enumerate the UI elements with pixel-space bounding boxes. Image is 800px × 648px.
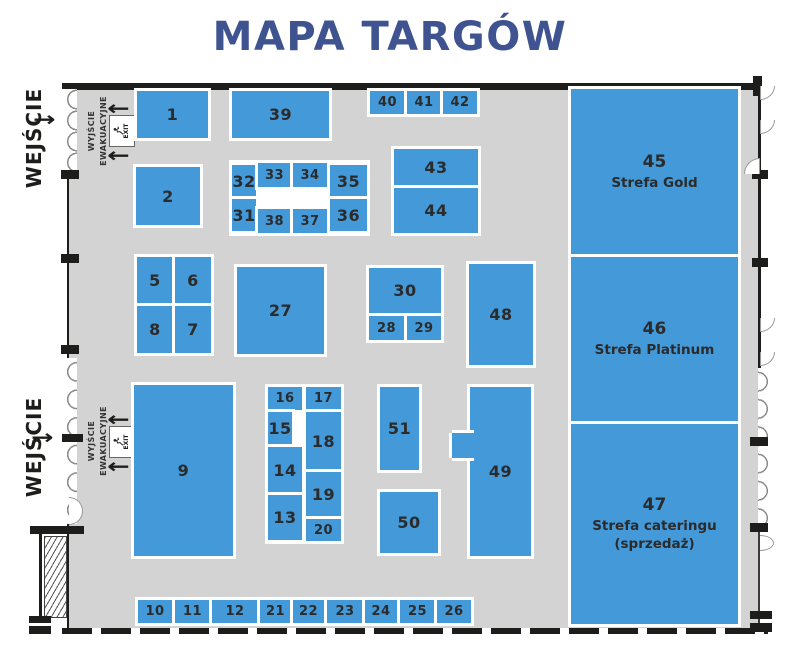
booth-5: 5: [137, 257, 173, 304]
booth-37: 37: [293, 209, 327, 233]
booth-11: 11: [175, 600, 210, 623]
booth-40: 40: [370, 91, 405, 114]
booth-26: 26: [437, 600, 471, 623]
wall-tick: [752, 258, 768, 267]
booth-1: 1: [137, 91, 208, 138]
booth-32: 32: [232, 165, 256, 198]
wall-bottom-dashed: [62, 628, 768, 634]
booth-14: 14: [268, 447, 302, 493]
booth-9: 9: [134, 385, 233, 556]
wall-tick: [61, 345, 79, 354]
evac-arrow: ←: [107, 143, 130, 167]
zone-subname: (sprzedaż): [614, 535, 694, 553]
zone-45: 45Strefa Gold: [571, 89, 738, 254]
booth-21: 21: [260, 600, 291, 623]
staircase-steps: [44, 536, 67, 618]
booth-39: 39: [232, 91, 329, 138]
booth-36: 36: [330, 199, 367, 231]
evac-line1: WYJŚCIE: [87, 111, 96, 151]
zone-47: 47Strefa cateringu(sprzedaż): [571, 424, 738, 624]
door-arc: [760, 535, 774, 551]
curtain-scallops-right: [758, 368, 773, 532]
wall-corner-bar: [750, 611, 772, 619]
booth-16: 16: [268, 387, 302, 410]
booth-19: 19: [306, 472, 341, 517]
staircase-rail: [39, 534, 42, 618]
wall-corner-bar: [750, 623, 772, 632]
staircase-bottom-bar: [29, 626, 51, 634]
booth-38: 38: [258, 209, 291, 233]
zone-number: 46: [643, 318, 667, 341]
booth-7: 7: [175, 306, 211, 353]
booth-41: 41: [407, 91, 441, 114]
exit-sign-text: EXIT: [124, 434, 130, 449]
booth-17: 17: [306, 387, 341, 410]
booth-18: 18: [306, 412, 341, 470]
booth-22: 22: [293, 600, 324, 623]
staircase-top-bar: [30, 526, 84, 534]
door-arc: [760, 318, 775, 332]
booth-44: 44: [394, 188, 478, 233]
booth-30: 30: [369, 268, 441, 313]
zone-number: 47: [643, 494, 667, 517]
booth-6: 6: [175, 257, 211, 304]
wall-tick: [750, 523, 768, 532]
booth-43: 43: [394, 149, 478, 186]
booth-51: 51: [380, 387, 419, 470]
booth-24: 24: [365, 600, 397, 623]
booth-33: 33: [258, 163, 291, 187]
staircase-bottom-bar: [29, 616, 51, 623]
zone-name: Strefa Gold: [611, 174, 697, 192]
booth-10: 10: [138, 600, 172, 623]
curtain-scallops-left-top: [62, 89, 77, 173]
booth-8: 8: [137, 306, 173, 353]
exit-sign-text: EXIT: [124, 123, 130, 138]
booth-27: 27: [237, 267, 324, 354]
booth-12: 12: [212, 600, 258, 623]
fair-map: MAPA TARGÓW WEJŚCIE → WEJŚCIE → WYJŚCIE …: [0, 0, 800, 648]
wall-tick: [750, 437, 768, 446]
booth-15: 15: [268, 412, 292, 445]
booth-50: 50: [380, 492, 438, 553]
door-arc: [760, 352, 775, 366]
entrance-label-top: WEJŚCIE: [22, 78, 46, 198]
evac-line1: WYJŚCIE: [87, 421, 96, 461]
door-arc: [760, 86, 775, 100]
running-person-icon: [113, 125, 124, 137]
booth-31: 31: [232, 199, 256, 231]
entrance-marker-bar: [62, 434, 83, 442]
entrance-arrow-top: →: [33, 107, 56, 131]
booth-28: 28: [369, 316, 404, 340]
page-title: MAPA TARGÓW: [0, 14, 780, 60]
booth-42: 42: [443, 91, 477, 114]
booth-34: 34: [293, 163, 327, 187]
zone-name: Strefa Platinum: [595, 341, 715, 359]
zone-number: 45: [643, 151, 667, 174]
booth-49-tab: [452, 433, 474, 458]
evac-arrow: ←: [107, 454, 130, 478]
zone-name: Strefa cateringu: [592, 517, 717, 535]
booth-48: 48: [469, 264, 533, 365]
booth-25: 25: [400, 600, 435, 623]
zone-46: 46Strefa Platinum: [571, 257, 738, 421]
running-person-icon: [113, 436, 124, 448]
entrance-arrow-bottom: →: [31, 425, 54, 449]
door-arc: [760, 120, 775, 134]
booth-13: 13: [268, 495, 302, 540]
booth-29: 29: [407, 316, 441, 340]
booth-35: 35: [330, 165, 367, 198]
wall-tick: [61, 170, 79, 179]
booth-49: 49: [470, 387, 531, 556]
booth-23: 23: [327, 600, 363, 623]
booth-20: 20: [306, 519, 341, 541]
wall-tick: [61, 254, 79, 263]
booth-2: 2: [136, 167, 200, 225]
